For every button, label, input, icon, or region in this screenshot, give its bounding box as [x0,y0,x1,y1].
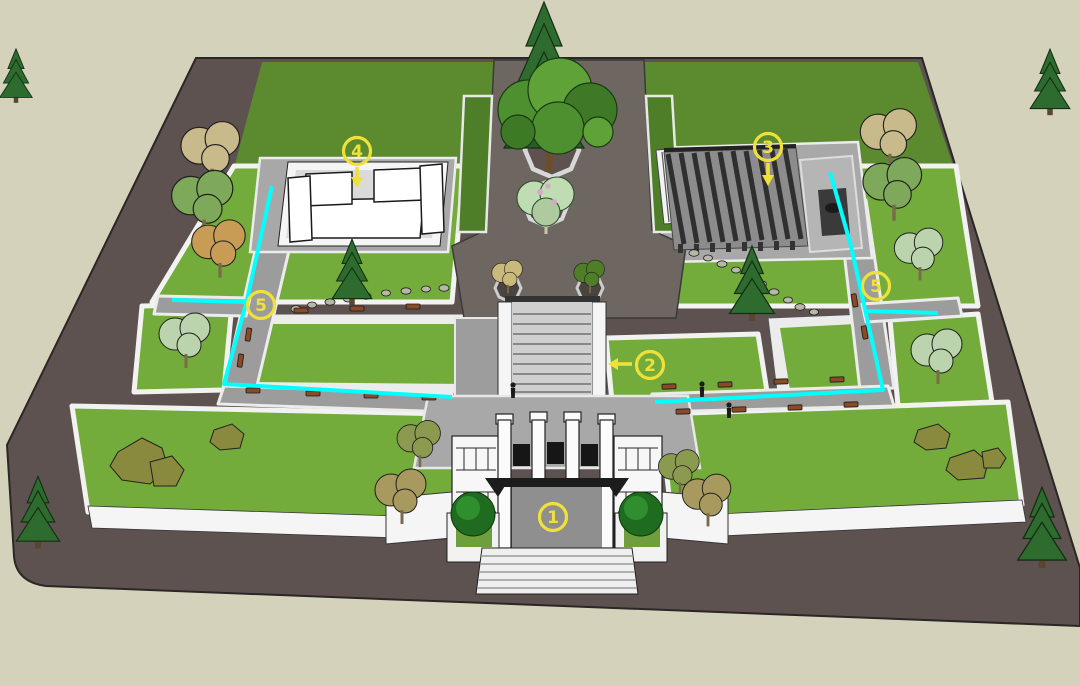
person-figure [510,382,515,398]
marker-3-number: 3 [762,138,774,158]
route-east-spur [864,311,938,313]
marker-5-west-number: 5 [255,296,267,316]
person-figure [699,381,704,397]
west-bed-lawn [250,324,478,384]
pergola-structure [664,146,862,253]
stair-wall-east [592,302,606,398]
gate-windows [513,442,598,466]
marker-5-east-number: 5 [870,277,882,297]
person-figure [726,402,731,418]
marker-2-number: 2 [644,356,656,376]
marker-1-number: 1 [547,508,559,528]
gate-canopy [497,478,617,487]
marker-4-number: 4 [351,142,363,162]
route-west-spur [172,300,248,302]
scene-canvas: 1 2 3 4 5 5 [0,0,1080,686]
pavilion-sofa-structure [278,162,448,246]
hedge-west [458,96,492,232]
gate-front-steps [476,548,638,594]
stair-wall-west [498,302,512,398]
site-plan-3d-view: 1 2 3 4 5 5 [0,0,1080,686]
